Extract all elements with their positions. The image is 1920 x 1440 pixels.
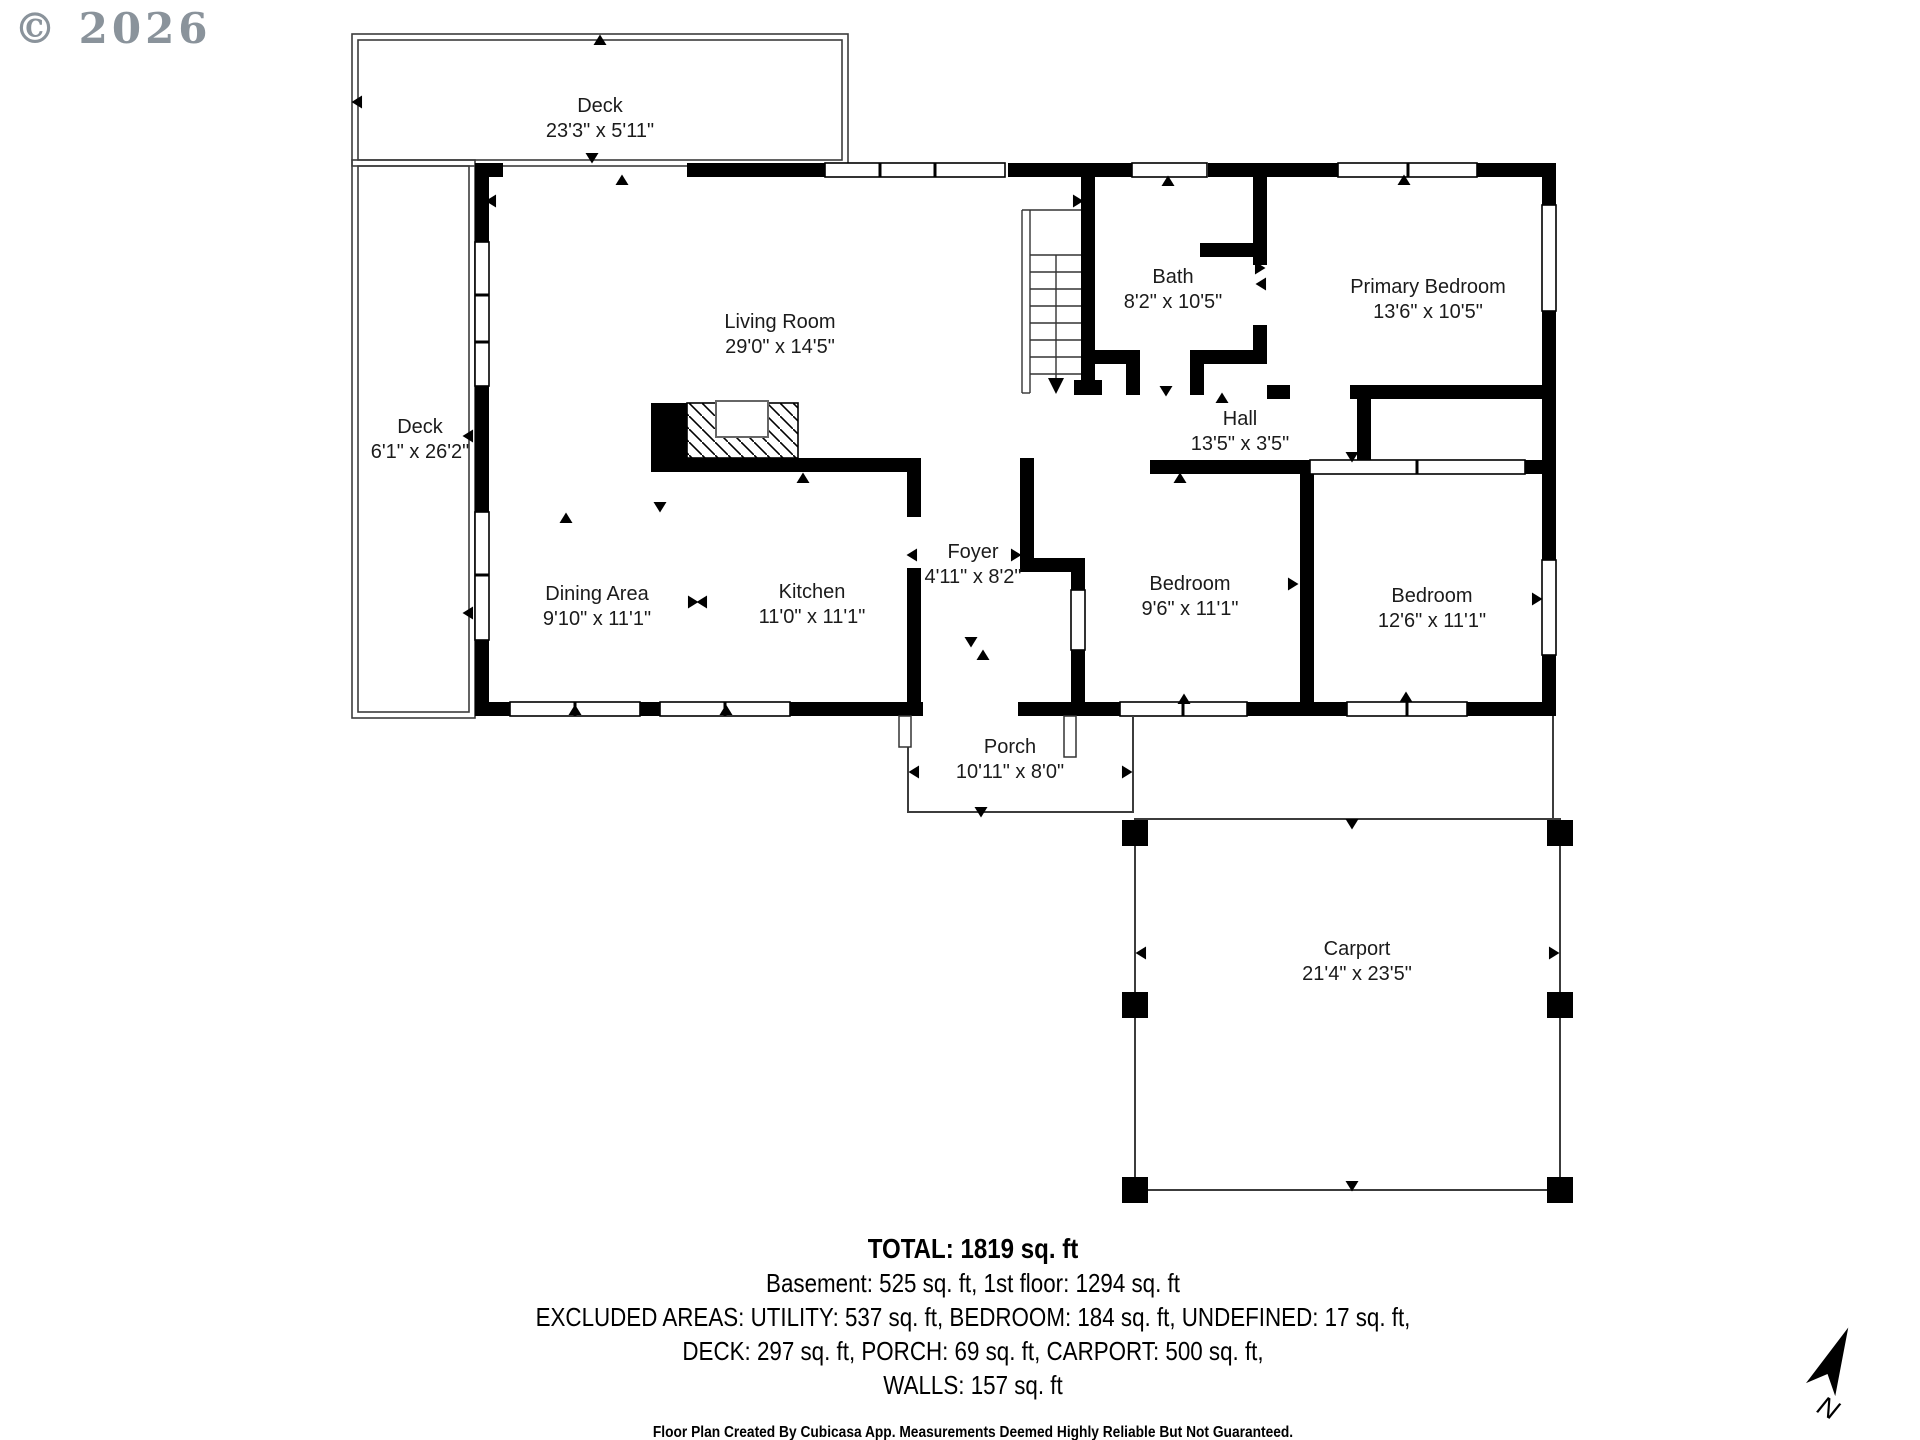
room-label-deck-top: Deck23'3" x 5'11" (546, 95, 654, 142)
deck-left-outline (352, 160, 475, 718)
room-label-kitchen: Kitchen11'0" x 11'1" (759, 581, 866, 628)
footer-disclaimer: Floor Plan Created By Cubicasa App. Meas… (147, 1416, 1798, 1440)
room-label-porch: Porch10'11" x 8'0" (956, 736, 1064, 783)
room-label-foyer: Foyer4'11" x 8'2" (924, 541, 1021, 588)
room-label-bedroom-2: Bedroom12'6" x 11'1" (1378, 585, 1486, 632)
room-label-bath: Bath8'2" x 10'5" (1124, 266, 1223, 313)
floor-plan-page: © 2026 (0, 0, 1920, 1440)
room-label-bedroom-1: Bedroom9'6" x 11'1" (1141, 573, 1238, 620)
door-leaf (1064, 716, 1076, 757)
summary-line-2: EXCLUDED AREAS: UTILITY: 537 sq. ft, BED… (147, 1300, 1798, 1334)
room-label-primary-bedroom: Primary Bedroom13'6" x 10'5" (1350, 276, 1506, 323)
summary-line-3: DECK: 297 sq. ft, PORCH: 69 sq. ft, CARP… (147, 1334, 1798, 1368)
stairs-down-arrow (1048, 378, 1064, 394)
room-labels: Deck23'3" x 5'11"Deck6'1" x 26'2"Living … (371, 95, 1506, 985)
carport-posts (1122, 820, 1573, 1203)
room-label-hall: Hall13'5" x 3'5" (1191, 408, 1290, 455)
fireplace (651, 401, 798, 458)
summary-line-1: Basement: 525 sq. ft, 1st floor: 1294 sq… (147, 1266, 1798, 1300)
room-label-dining-area: Dining Area9'10" x 11'1" (543, 583, 651, 630)
door-leaf (899, 716, 911, 747)
area-summary: TOTAL: 1819 sq. ft Basement: 525 sq. ft,… (147, 1232, 1798, 1440)
windows (475, 163, 1556, 716)
room-label-carport: Carport21'4" x 23'5" (1302, 938, 1412, 985)
walls (475, 163, 1556, 716)
total-area: TOTAL: 1819 sq. ft (147, 1232, 1798, 1266)
room-label-deck-left: Deck6'1" x 26'2" (371, 416, 470, 463)
summary-line-4: WALLS: 157 sq. ft (147, 1368, 1798, 1402)
floor-plan-drawing: Deck23'3" x 5'11"Deck6'1" x 26'2"Living … (0, 0, 1920, 1440)
north-arrow: N (1806, 1321, 1863, 1426)
room-label-living-room: Living Room29'0" x 14'5" (724, 311, 835, 358)
north-label: N (1813, 1390, 1845, 1426)
staircase (1022, 210, 1081, 394)
